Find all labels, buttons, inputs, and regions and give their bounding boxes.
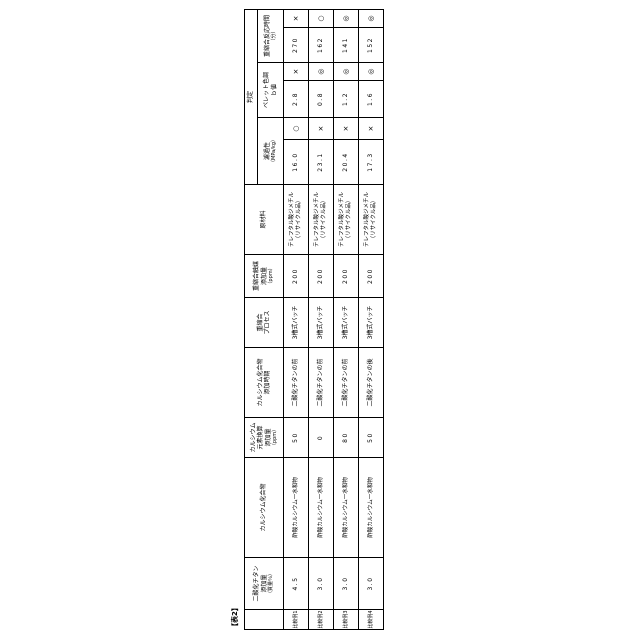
judgment-mark-filterability: ×	[359, 118, 384, 140]
cell-tio2: 3.0	[334, 558, 359, 610]
cell-catalyst-ppm: 200	[284, 255, 309, 298]
cell-raw-material: テレフタル酸ジメチル （リサイクル品）	[309, 185, 334, 255]
patent-page: { "table_label": "【表2】", "headers": { "r…	[0, 0, 640, 640]
corner-cell	[245, 610, 284, 630]
cell-calcium-timing: 二酸化チタンの前	[334, 348, 359, 418]
row-label: 比較例3	[334, 610, 359, 630]
header-polycondensation-process: 重縮合 プロセス	[245, 298, 284, 348]
judgment-mark-color: ◎	[334, 63, 359, 81]
table-row-comparative-example-4: 比較例4 3.0 酢酸カルシウム一水和物 50 二酸化チタンの後 3槽式バッチ …	[359, 9, 384, 629]
table-row-comparative-example-1: 比較例1 4.5 酢酸カルシウム一水和物 50 二酸化チタンの前 3槽式バッチ …	[284, 9, 309, 629]
header-catalyst-ppm: 重縮合触媒 添加量 （ppm）	[245, 255, 284, 298]
cell-time-value: 270	[284, 28, 309, 63]
cell-tio2: 3.0	[359, 558, 384, 610]
judgment-mark-time: ◎	[334, 9, 359, 27]
table-row-comparative-example-2: 比較例2 3.0 酢酸カルシウム一水和物 0 二酸化チタンの前 3槽式バッチ 2…	[309, 9, 334, 629]
judgment-mark-time: ×	[284, 9, 309, 27]
cell-filterability-value: 16.0	[284, 140, 309, 185]
judgment-mark-color: ◎	[309, 63, 334, 81]
cell-color-b-value: 1.2	[334, 81, 359, 118]
cell-catalyst-ppm: 200	[334, 255, 359, 298]
cell-calcium-compound: 酢酸カルシウム一水和物	[334, 458, 359, 558]
cell-catalyst-ppm: 200	[309, 255, 334, 298]
cell-calcium-timing: 二酸化チタンの後	[359, 348, 384, 418]
judgment-mark-time: ○	[309, 9, 334, 27]
cell-filterability-value: 20.4	[334, 140, 359, 185]
cell-catalyst-ppm: 200	[359, 255, 384, 298]
cell-time-value: 152	[359, 28, 384, 63]
cell-time-value: 141	[334, 28, 359, 63]
cell-raw-material: テレフタル酸ジメチル （リサイクル品）	[359, 185, 384, 255]
header-raw-material: 原材料	[245, 185, 284, 255]
readable-table-block: 【表2】 二酸化チタン 添加量 （質量％） カルシウム化合物	[228, 8, 385, 630]
cell-tio2: 4.5	[284, 558, 309, 610]
cell-color-b-value: 0.8	[309, 81, 334, 118]
header-judgment-group: 判定	[245, 9, 258, 184]
cell-color-b-value: 1.6	[359, 81, 384, 118]
cell-calcium-compound: 酢酸カルシウム一水和物	[284, 458, 309, 558]
table-2: 二酸化チタン 添加量 （質量％） カルシウム化合物 カルシウム 元素換算 添加量…	[244, 9, 384, 630]
cell-color-b-value: 2.8	[284, 81, 309, 118]
table-caption: 【表2】	[228, 8, 244, 630]
cell-process: 3槽式バッチ	[334, 298, 359, 348]
cell-process: 3槽式バッチ	[284, 298, 309, 348]
cell-raw-material: テレフタル酸ジメチル （リサイクル品）	[334, 185, 359, 255]
cell-calcium-compound: 酢酸カルシウム一水和物	[359, 458, 384, 558]
cell-calcium-compound: 酢酸カルシウム一水和物	[309, 458, 334, 558]
header-tio2-amount: 二酸化チタン 添加量 （質量％）	[245, 558, 284, 610]
judgment-mark-filterability: ○	[284, 118, 309, 140]
row-label: 比較例4	[359, 610, 384, 630]
cell-process: 3槽式バッチ	[309, 298, 334, 348]
cell-calcium-ppm: 50	[284, 418, 309, 458]
cell-raw-material: テレフタル酸ジメチル （リサイクル品）	[284, 185, 309, 255]
judgment-mark-color: ◎	[359, 63, 384, 81]
cell-filterability-value: 23.1	[309, 140, 334, 185]
rotated-table-region: 【表2】 二酸化チタン 添加量 （質量％） カルシウム化合物	[228, 8, 385, 632]
cell-filterability-value: 17.3	[359, 140, 384, 185]
judgment-mark-filterability: ×	[309, 118, 334, 140]
header-pellet-color-b: ペレット色調 ｂ値	[258, 63, 284, 118]
judgment-mark-color: ×	[284, 63, 309, 81]
header-calcium-compound: カルシウム化合物	[245, 458, 284, 558]
cell-calcium-ppm: 50	[359, 418, 384, 458]
cell-time-value: 162	[309, 28, 334, 63]
cell-calcium-ppm: 0	[309, 418, 334, 458]
cell-calcium-ppm: 80	[334, 418, 359, 458]
row-label: 比較例2	[309, 610, 334, 630]
row-label: 比較例1	[284, 610, 309, 630]
judgment-mark-time: ◎	[359, 9, 384, 27]
cell-process: 3槽式バッチ	[359, 298, 384, 348]
cell-calcium-timing: 二酸化チタンの前	[284, 348, 309, 418]
header-calcium-ppm: カルシウム 元素換算 添加量 （ppm）	[245, 418, 284, 458]
header-filterability: 濾過性 （MPa/kg）	[258, 118, 284, 185]
header-polycondensation-time: 重縮合反応時間 （分）	[258, 9, 284, 62]
cell-tio2: 3.0	[309, 558, 334, 610]
header-calcium-timing: カルシウム化合物 添加時期	[245, 348, 284, 418]
cell-calcium-timing: 二酸化チタンの前	[309, 348, 334, 418]
table-row-comparative-example-3: 比較例3 3.0 酢酸カルシウム一水和物 80 二酸化チタンの前 3槽式バッチ …	[334, 9, 359, 629]
judgment-mark-filterability: ×	[334, 118, 359, 140]
